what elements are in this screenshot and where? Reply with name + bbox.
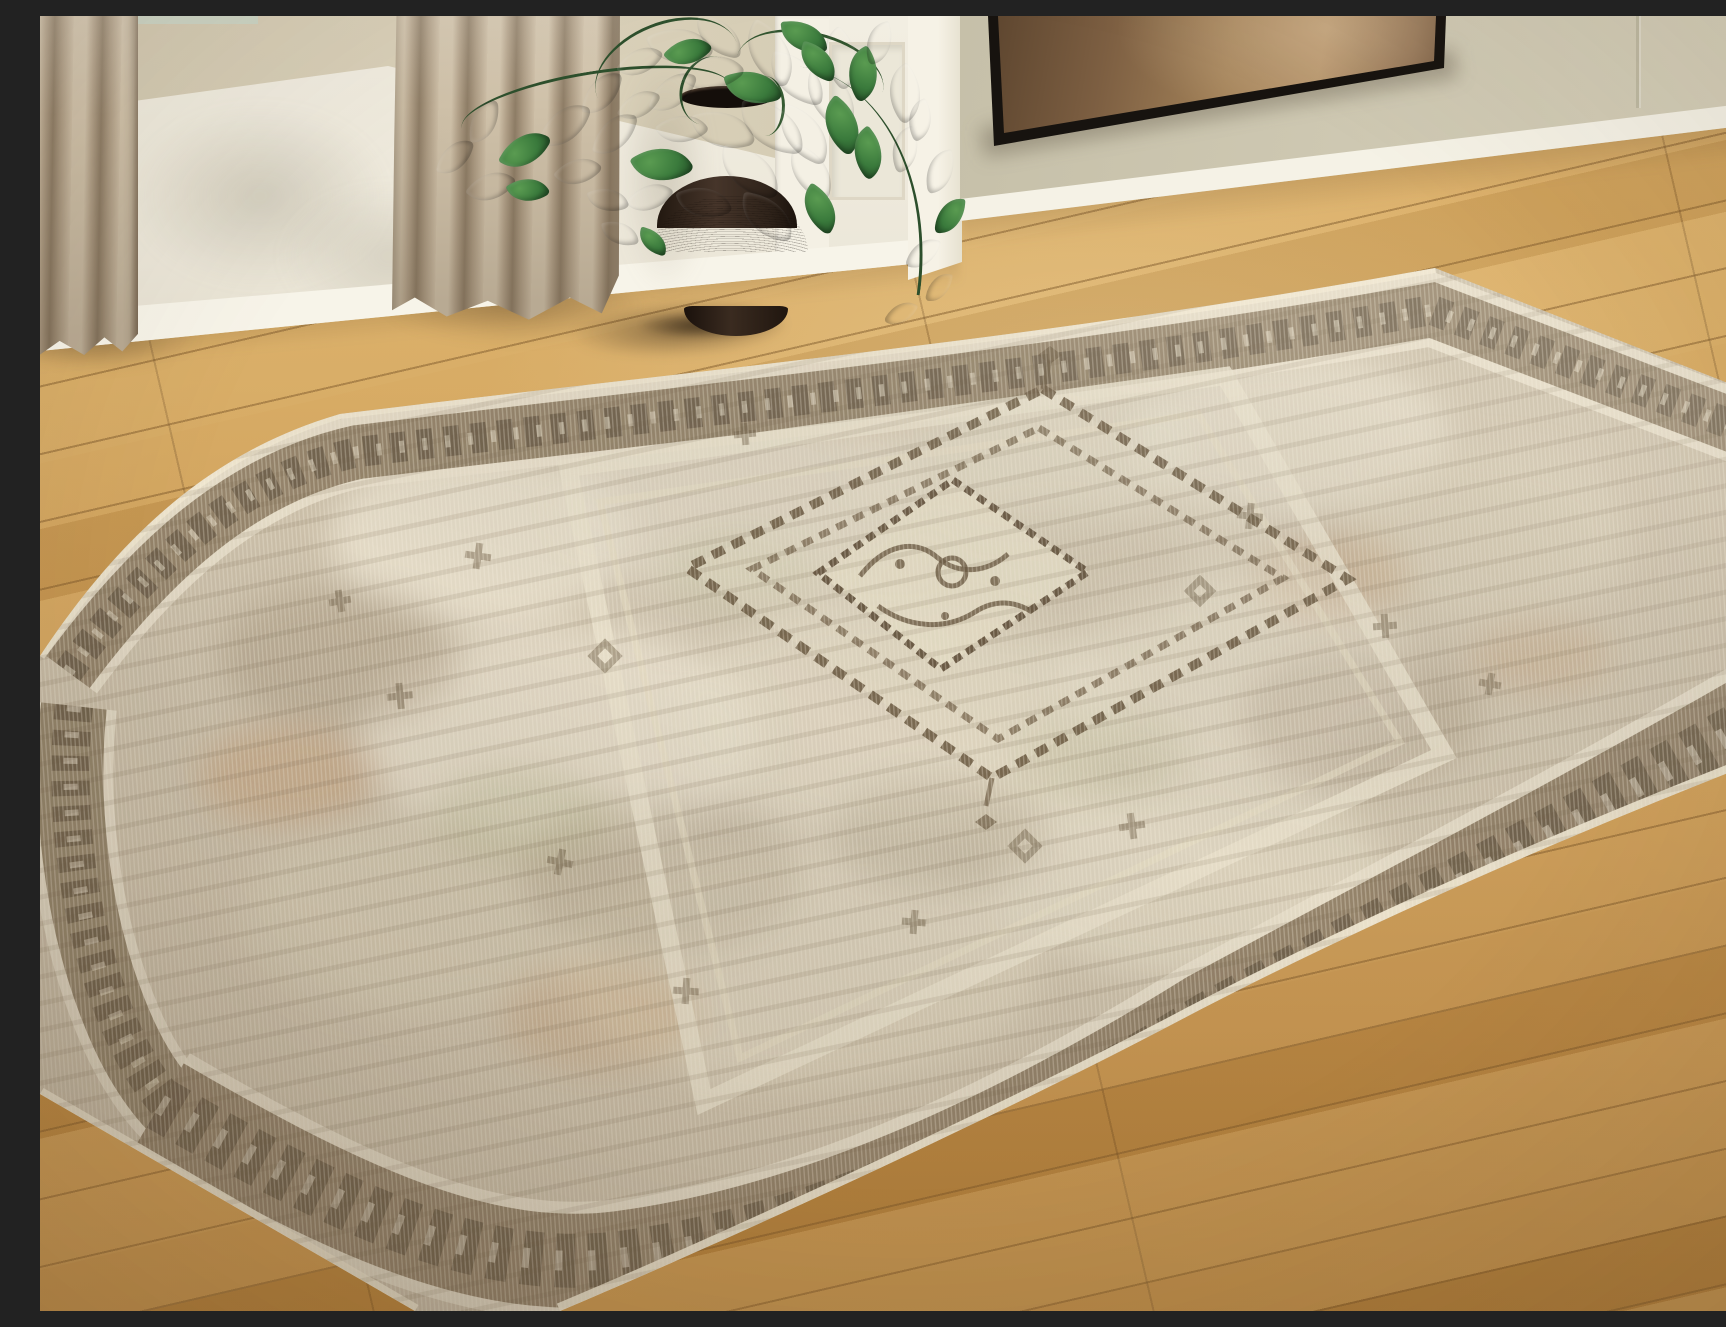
area-rug [40,16,1726,1311]
room-photo: Living room scene: a distressed vintage-… [40,16,1726,1311]
curtain-left [40,16,138,362]
curtain-main [392,16,620,326]
rug-shading [40,268,1726,1311]
rug-body [40,16,1726,1311]
